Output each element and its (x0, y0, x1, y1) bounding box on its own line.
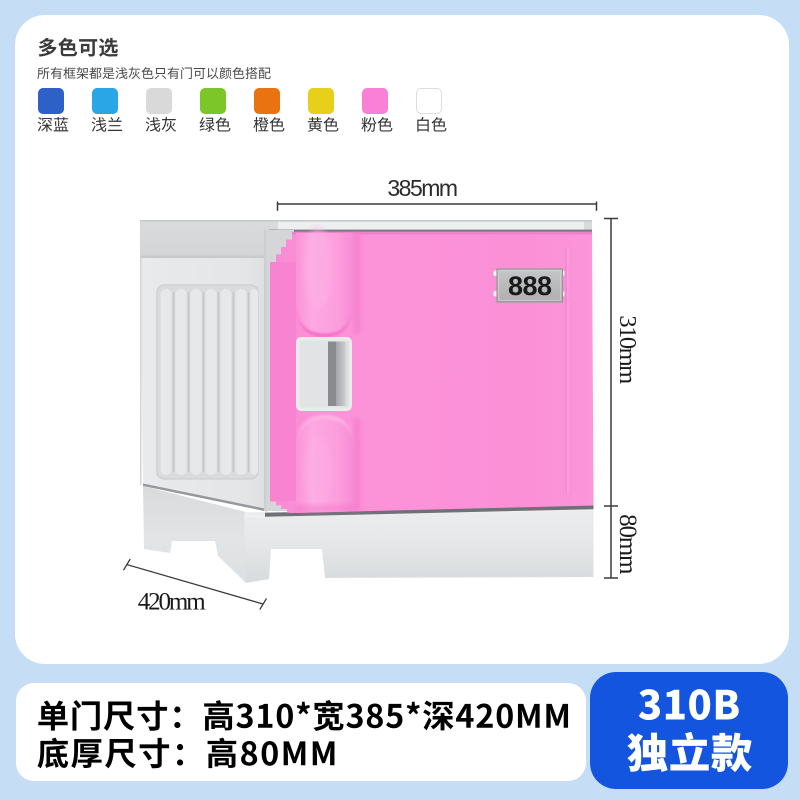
svg-text:385mm: 385mm (387, 175, 457, 201)
svg-text:80mm: 80mm (614, 514, 641, 575)
svg-text:310mm: 310mm (614, 315, 641, 384)
svg-text:888: 888 (508, 271, 552, 301)
svg-text:420mm: 420mm (138, 589, 207, 616)
